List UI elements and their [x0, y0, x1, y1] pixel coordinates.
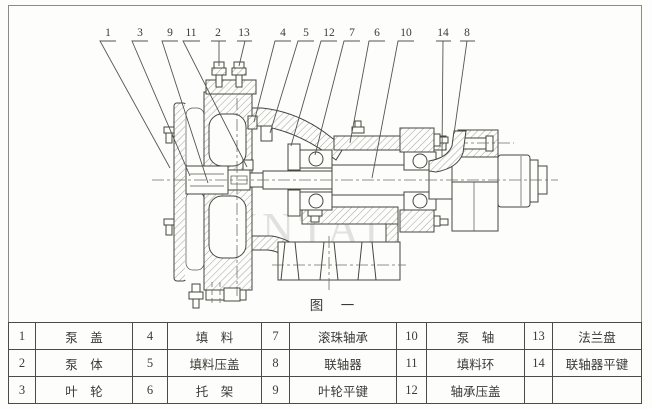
part-number: 4 [133, 323, 168, 350]
discharge-flange [206, 62, 256, 94]
part-name: 叶轮平键 [290, 377, 397, 404]
part-name: 滚珠轴承 [290, 323, 397, 350]
callout-label-2: 2 [215, 27, 221, 39]
bracket-foot [272, 236, 406, 292]
part-name: 联轴器平键 [553, 350, 642, 377]
part-number: 1 [9, 323, 36, 350]
part-number: 7 [262, 323, 290, 350]
part-name: 填 料 [168, 323, 262, 350]
table-row: 1泵 盖4填 料7滚珠轴承10泵 轴13法兰盘 [9, 323, 642, 350]
part-number: 8 [262, 350, 290, 377]
callout-label-14: 14 [437, 27, 449, 39]
table-row: 2泵 体5填料压盖8联轴器11填料环14联轴器平键 [9, 350, 642, 377]
figure-page: JINTAI [0, 0, 652, 409]
part-number: 11 [397, 350, 427, 377]
figure-caption: 图 一 [310, 298, 357, 313]
part-number: 5 [133, 350, 168, 377]
callout-label-1: 1 [105, 27, 111, 39]
part-name: 法兰盘 [553, 323, 642, 350]
part-name [553, 377, 642, 404]
callout-label-6: 6 [374, 27, 380, 39]
callout-label-9: 9 [167, 27, 173, 39]
part-number: 2 [9, 350, 36, 377]
callout-label-7: 7 [349, 27, 355, 39]
packing [248, 116, 257, 129]
pump-body [204, 92, 252, 300]
pump-cover [164, 103, 186, 281]
part-number: 3 [9, 377, 36, 404]
packing-gland [261, 126, 272, 141]
pump-cross-section-drawing: JINTAI [0, 0, 652, 322]
callout-label-11: 11 [185, 27, 196, 39]
callout-label-10: 10 [400, 27, 412, 39]
part-number: 9 [262, 377, 290, 404]
coupling-shaft-end [498, 155, 547, 207]
part-name: 叶 轮 [36, 377, 133, 404]
part-name: 泵 体 [36, 350, 133, 377]
part-number: 6 [133, 377, 168, 404]
callout-label-13: 13 [238, 27, 250, 39]
part-number [525, 377, 553, 404]
callout-label-8: 8 [464, 27, 470, 39]
part-name: 轴承压盖 [427, 377, 525, 404]
part-name: 填料环 [427, 350, 525, 377]
parts-table-body: 1泵 盖4填 料7滚珠轴承10泵 轴13法兰盘2泵 体5填料压盖8联轴器11填料… [9, 323, 642, 404]
part-number: 13 [525, 323, 553, 350]
part-number: 14 [525, 350, 553, 377]
callout-label-12: 12 [323, 27, 335, 39]
part-name: 填料压盖 [168, 350, 262, 377]
table-row: 3叶 轮6托 架9叶轮平键12轴承压盖 [9, 377, 642, 404]
callout-label-3: 3 [137, 27, 143, 39]
part-number: 12 [397, 377, 427, 404]
callout-leader-8 [454, 41, 475, 134]
callout-label-5: 5 [303, 27, 309, 39]
part-name: 泵 盖 [36, 323, 133, 350]
parts-table: 1泵 盖4填 料7滚珠轴承10泵 轴13法兰盘2泵 体5填料压盖8联轴器11填料… [8, 322, 642, 404]
part-name: 托 架 [168, 377, 262, 404]
part-number: 10 [397, 323, 427, 350]
callout-label-4: 4 [280, 27, 286, 39]
part-name: 泵 轴 [427, 323, 525, 350]
part-name: 联轴器 [290, 350, 397, 377]
